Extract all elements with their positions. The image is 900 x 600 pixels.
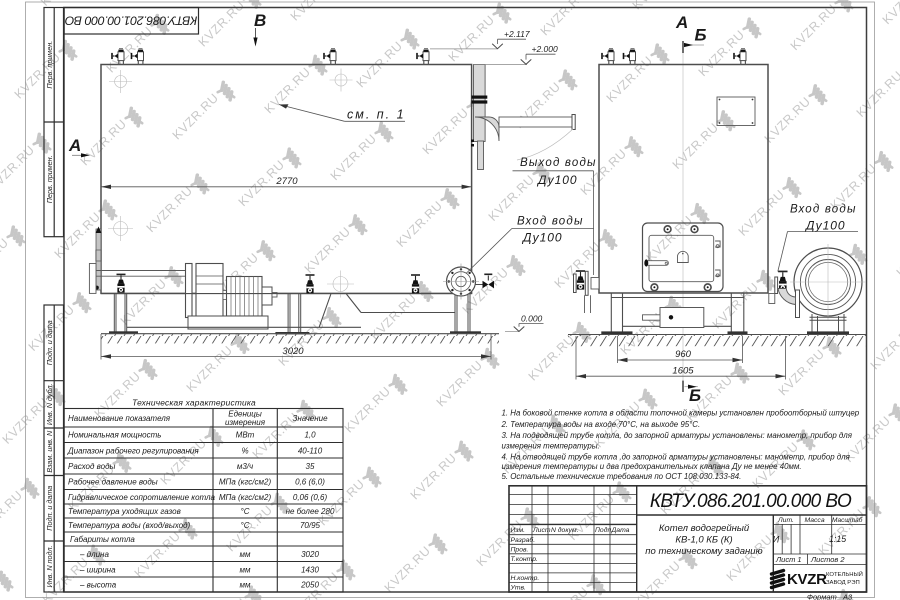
- svg-text:Гидравлическое сопротивление к: Гидравлическое сопротивление котла: [68, 493, 216, 502]
- svg-text:Расход воды: Расход воды: [68, 462, 115, 471]
- svg-text:Вход воды: Вход воды: [790, 204, 857, 216]
- svg-text:70/95: 70/95: [300, 521, 321, 530]
- svg-text:°С: °С: [241, 521, 250, 530]
- svg-text:МПа (кгс/см2): МПа (кгс/см2): [219, 493, 272, 502]
- svg-text:м3/ч: м3/ч: [237, 462, 253, 471]
- svg-text:Ду100: Ду100: [536, 173, 578, 187]
- svg-text:Номинальная мощность: Номинальная мощность: [68, 431, 161, 440]
- svg-text:И: И: [773, 535, 780, 546]
- svg-text:КОТЕЛЬНЫЙ: КОТЕЛЬНЫЙ: [826, 570, 863, 578]
- svg-text:Наименование показателя: Наименование показателя: [68, 414, 171, 423]
- svg-text:Дата: Дата: [611, 527, 630, 534]
- svg-text:МПа (кгс/см2): МПа (кгс/см2): [219, 478, 272, 487]
- svg-text:Рабочее давление воды: Рабочее давление воды: [68, 478, 158, 487]
- svg-text:Техническая характеристика: Техническая характеристика: [132, 398, 256, 408]
- svg-text:Диапазон рабочего регулировани: Диапазон рабочего регулирования: [67, 447, 199, 456]
- svg-text:0,06 (0,6): 0,06 (0,6): [293, 493, 328, 502]
- svg-text:ЗАВОД РЭП: ЗАВОД РЭП: [826, 580, 860, 586]
- svg-text:2. Температура воды на входе: 2. Температура воды на входе 70°С, на вы…: [501, 420, 701, 429]
- svg-text:Подп. и дата: Подп. и дата: [45, 486, 54, 531]
- svg-text:Пров.: Пров.: [511, 546, 529, 553]
- svg-text:Ду100: Ду100: [804, 219, 846, 233]
- svg-text:KVZR: KVZR: [787, 571, 827, 588]
- svg-text:Масштаб: Масштаб: [832, 516, 863, 524]
- svg-text:960: 960: [675, 349, 692, 360]
- svg-text:+2.000: +2.000: [532, 44, 559, 54]
- svg-text:А3: А3: [842, 593, 853, 600]
- svg-text:40-110: 40-110: [298, 447, 323, 456]
- svg-text:мм: мм: [240, 581, 251, 590]
- svg-text:0.000: 0.000: [521, 313, 543, 323]
- svg-text:Габариты котла: Габариты котла: [70, 535, 135, 544]
- svg-text:0,6 (6,0): 0,6 (6,0): [295, 478, 325, 487]
- svg-text:+2.117: +2.117: [504, 29, 530, 39]
- svg-text:– высота: – высота: [79, 581, 117, 590]
- svg-text:Б: Б: [689, 386, 701, 405]
- svg-text:КВТУ.086.201.00.000 ВО: КВТУ.086.201.00.000 ВО: [64, 14, 197, 28]
- svg-text:Температура воды (вход/выход): Температура воды (вход/выход): [68, 521, 190, 530]
- svg-text:°С: °С: [241, 507, 250, 516]
- svg-text:по техническому заданию: по техническому заданию: [645, 546, 762, 557]
- svg-text:см. п. 1: см. п. 1: [347, 108, 406, 122]
- svg-text:Перв. примен.: Перв. примен.: [45, 41, 54, 89]
- svg-text:Т.контр.: Т.контр.: [511, 556, 539, 563]
- svg-text:Формат: Формат: [807, 593, 837, 600]
- svg-text:Взам. инв. N: Взам. инв. N: [45, 430, 54, 473]
- svg-text:не более 280: не более 280: [286, 507, 335, 516]
- svg-text:Лит.: Лит.: [777, 517, 794, 524]
- svg-text:В: В: [254, 11, 266, 30]
- svg-text:Значение: Значение: [292, 414, 328, 423]
- svg-text:МВт: МВт: [236, 431, 255, 440]
- svg-text:1:15: 1:15: [829, 534, 846, 544]
- svg-text:35: 35: [306, 462, 315, 471]
- svg-text:%: %: [241, 447, 248, 456]
- svg-text:КВТУ.086.201.00.000 ВО: КВТУ.086.201.00.000 ВО: [650, 491, 852, 512]
- svg-text:Листов 2: Листов 2: [810, 555, 845, 564]
- svg-text:– ширина: – ширина: [79, 566, 116, 575]
- svg-text:Температура уходящих газов: Температура уходящих газов: [68, 507, 181, 516]
- svg-text:Подп. и дата: Подп. и дата: [45, 320, 54, 365]
- svg-text:2770: 2770: [275, 176, 298, 187]
- svg-text:Ду100: Ду100: [521, 231, 563, 245]
- svg-text:Изм.: Изм.: [511, 527, 526, 534]
- svg-text:Перв. примен.: Перв. примен.: [45, 155, 54, 203]
- svg-text:КВ-1,0 КБ (К): КВ-1,0 КБ (К): [675, 535, 732, 546]
- svg-text:5. Остальные технические треб: 5. Остальные технические требования по О…: [502, 472, 742, 481]
- svg-text:измерения: измерения: [225, 418, 266, 427]
- svg-text:1430: 1430: [301, 566, 319, 575]
- svg-text:Лист 1: Лист 1: [775, 555, 802, 564]
- svg-text:Масса: Масса: [805, 517, 825, 524]
- svg-text:N докум.: N докум.: [551, 526, 579, 534]
- svg-text:3. На подводящей трубе котла,: 3. На подводящей трубе котла, до запорно…: [502, 431, 853, 440]
- svg-text:3020: 3020: [282, 346, 304, 357]
- svg-text:мм: мм: [240, 566, 251, 575]
- svg-text:2050: 2050: [300, 581, 319, 590]
- svg-text:Подп.: Подп.: [595, 526, 613, 534]
- svg-text:мм: мм: [240, 550, 251, 559]
- svg-text:Вход воды: Вход воды: [517, 216, 584, 228]
- svg-text:измерения температуры.: измерения температуры.: [502, 442, 600, 451]
- svg-text:Инв. N дубл.: Инв. N дубл.: [45, 383, 54, 425]
- svg-text:Инв. N подл.: Инв. N подл.: [45, 545, 54, 587]
- svg-text:измерения температуры и два пр: измерения температуры и два предохраните…: [502, 462, 802, 471]
- svg-text:А: А: [675, 13, 688, 32]
- svg-text:4. На отводящей трубе котла ,: 4. На отводящей трубе котла ,до запорной…: [502, 453, 851, 462]
- svg-text:3020: 3020: [301, 550, 319, 559]
- svg-text:1. На боковой стенке котла в: 1. На боковой стенке котла в области топ…: [502, 409, 860, 418]
- svg-text:1,0: 1,0: [304, 431, 316, 440]
- svg-text:Лист: Лист: [532, 527, 551, 534]
- svg-text:Утв.: Утв.: [510, 585, 527, 592]
- svg-text:– длина: – длина: [79, 550, 109, 559]
- svg-text:Б: Б: [695, 26, 707, 45]
- svg-text:А: А: [68, 136, 81, 155]
- svg-text:Разраб.: Разраб.: [511, 536, 536, 544]
- svg-text:Выход воды: Выход воды: [520, 157, 597, 169]
- svg-text:1605: 1605: [672, 365, 694, 376]
- svg-text:Котел водогрейный: Котел водогрейный: [659, 523, 750, 534]
- svg-text:Н.контр.: Н.контр.: [511, 575, 540, 582]
